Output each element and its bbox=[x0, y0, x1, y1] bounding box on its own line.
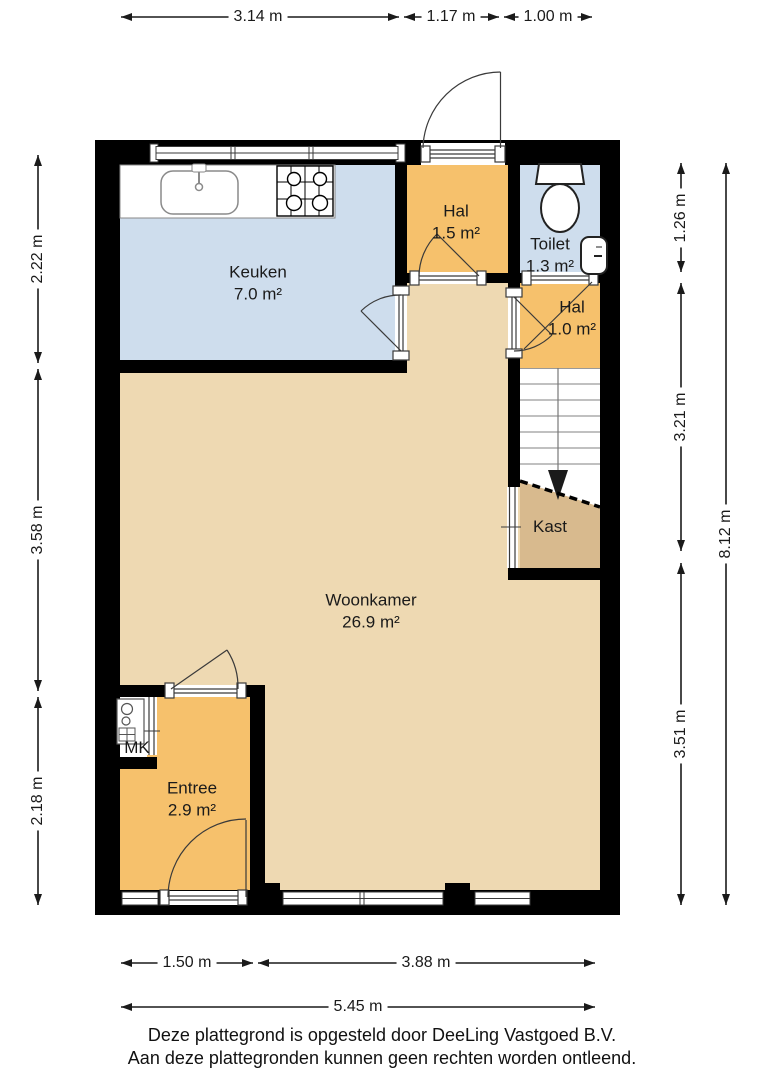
floorplan-drawing bbox=[0, 0, 764, 1080]
dim-right-1: 1.26 m bbox=[672, 189, 690, 248]
toilet-bowl-icon bbox=[541, 184, 579, 232]
door-main-entrance bbox=[421, 72, 505, 165]
wall-entree-right bbox=[250, 685, 265, 890]
wall-pier-bottom-2 bbox=[445, 883, 470, 915]
dim-top-3: 1.00 m bbox=[519, 8, 578, 26]
meter-cabinet-icon bbox=[117, 699, 144, 744]
dim-left-2: 3.58 m bbox=[29, 501, 47, 560]
dim-bottom-2: 3.88 m bbox=[397, 954, 456, 972]
wall-pier-bottom-1 bbox=[250, 883, 280, 915]
dim-top-2: 1.17 m bbox=[422, 8, 481, 26]
dim-top-1: 3.14 m bbox=[229, 8, 288, 26]
wall-mk-bottom bbox=[120, 757, 157, 769]
dim-left-3: 2.18 m bbox=[29, 772, 47, 831]
dim-left-1: 2.22 m bbox=[29, 230, 47, 289]
dim-right-3: 3.51 m bbox=[672, 705, 690, 764]
floorplan-page: Keuken 7.0 m² Hal 1.5 m² Toilet 1.3 m² H… bbox=[0, 0, 764, 1080]
window-entree bbox=[122, 892, 158, 905]
kitchen-fixtures bbox=[120, 164, 335, 218]
wall-left bbox=[95, 140, 120, 915]
toilet-tank-icon bbox=[536, 164, 584, 184]
wall-keuken-woonkamer bbox=[95, 360, 407, 373]
dim-bottom-1: 1.50 m bbox=[158, 954, 217, 972]
kitchen-sink-icon bbox=[161, 164, 238, 214]
wall-kast-bottom bbox=[508, 568, 600, 580]
stove-icon bbox=[277, 166, 333, 216]
dim-right-total: 8.12 m bbox=[717, 505, 735, 564]
footer-line-1: Deze plattegrond is opgesteld door DeeLi… bbox=[0, 1024, 764, 1047]
window-woonkamer-1 bbox=[283, 892, 443, 905]
room-hal-onder bbox=[520, 283, 600, 368]
footer-line-2: Aan deze plattegronden kunnen geen recht… bbox=[0, 1047, 764, 1070]
dim-bottom-total: 5.45 m bbox=[329, 998, 388, 1016]
window-woonkamer-2 bbox=[475, 892, 530, 905]
toilet-sink-icon bbox=[581, 237, 607, 274]
dim-right-2: 3.21 m bbox=[672, 388, 690, 447]
room-woonkamer-notch bbox=[407, 283, 508, 373]
window-keuken bbox=[150, 144, 405, 162]
footer-disclaimer: Deze plattegrond is opgesteld door DeeLi… bbox=[0, 1024, 764, 1070]
